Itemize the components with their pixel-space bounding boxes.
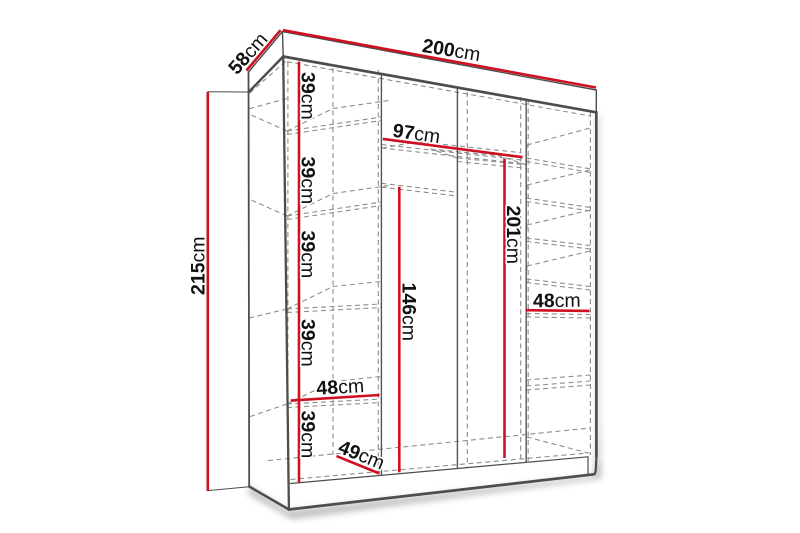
svg-text:39cm: 39cm <box>297 411 319 459</box>
svg-text:39cm: 39cm <box>297 231 319 279</box>
svg-text:39cm: 39cm <box>297 157 319 205</box>
svg-text:97cm: 97cm <box>391 120 441 148</box>
svg-text:48cm: 48cm <box>533 290 581 312</box>
svg-text:146cm: 146cm <box>398 283 420 342</box>
svg-text:39cm: 39cm <box>297 72 319 120</box>
svg-text:215cm: 215cm <box>188 236 210 295</box>
svg-text:49cm: 49cm <box>335 436 387 474</box>
svg-text:48cm: 48cm <box>316 375 365 400</box>
svg-text:201cm: 201cm <box>502 206 524 265</box>
svg-text:39cm: 39cm <box>297 319 319 367</box>
svg-text:200cm: 200cm <box>421 35 482 66</box>
